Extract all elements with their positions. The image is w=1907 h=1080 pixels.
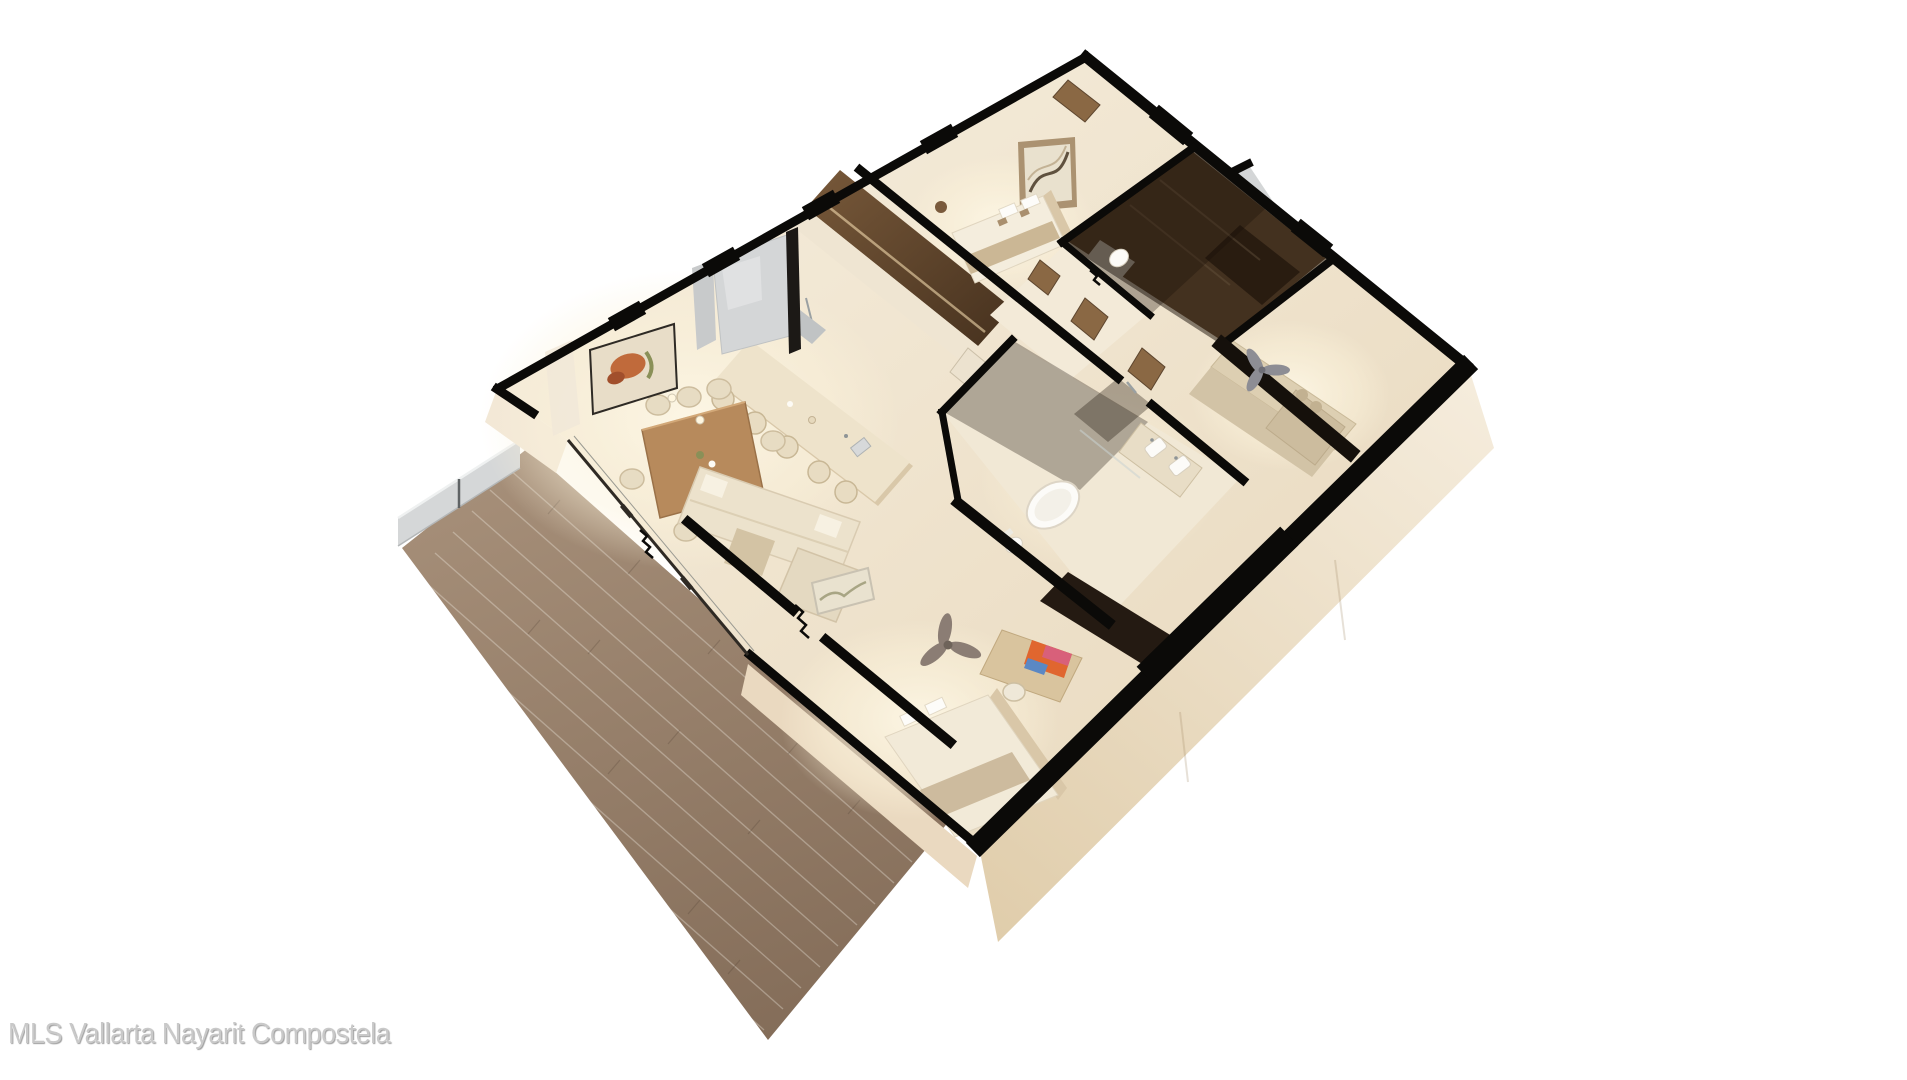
bedside-stool bbox=[935, 201, 947, 213]
watermark: MLS Vallarta Nayarit Compostela bbox=[8, 1018, 390, 1051]
desk-chair bbox=[1003, 683, 1025, 701]
floorplan-scene: MLS Vallarta Nayarit Compostela bbox=[0, 0, 1907, 1080]
floorplan-3d-render bbox=[0, 0, 1907, 1080]
